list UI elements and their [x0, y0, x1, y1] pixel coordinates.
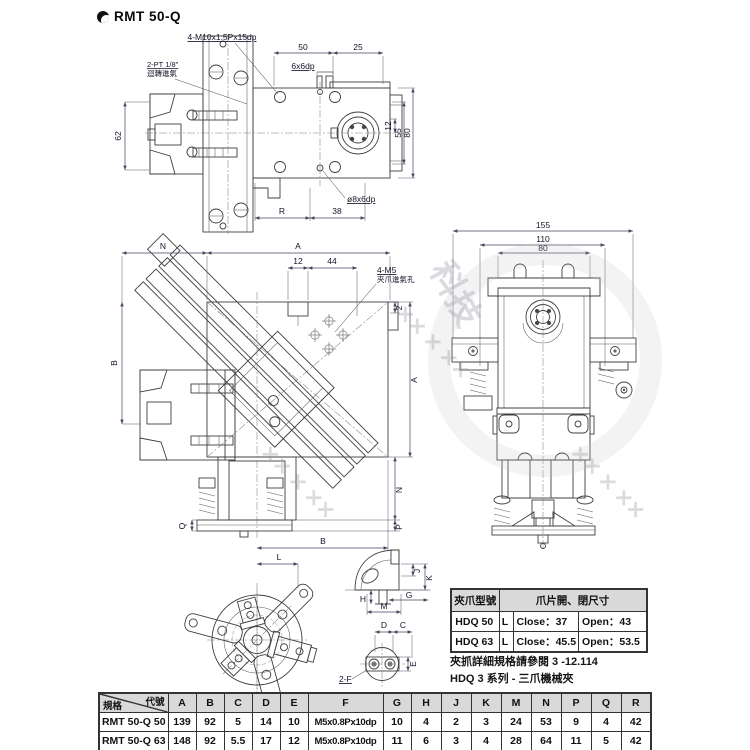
dim-label: 80	[402, 128, 412, 138]
spec-cell: 17	[252, 732, 280, 750]
dim-label: G	[406, 590, 413, 600]
jaw-col-model: 夾爪型號	[451, 589, 499, 612]
jaw-model: HDQ 63	[451, 632, 499, 653]
spec-table: 代號 規格 A B C D E F G H J K M N P Q R RMT …	[98, 692, 652, 750]
spec-cell: 24	[501, 713, 531, 732]
spec-cell: M5x0.8Px10dp	[308, 713, 383, 732]
diagonal-view-drawing: N A 12 44 4-M5 夾爪進氣孔 B Q 2	[95, 238, 445, 720]
spec-cell: 2	[441, 713, 471, 732]
spec-cell: 4	[471, 732, 501, 750]
top-view-geometry	[145, 34, 407, 234]
spec-col-header: B	[196, 693, 224, 713]
dim-label: 2-PT 1/8"	[147, 60, 179, 69]
jaw-grip: L	[499, 632, 513, 653]
dim-label: C	[400, 620, 406, 630]
jaw-model: HDQ 50	[451, 612, 499, 632]
spec-col-header: M	[501, 693, 531, 713]
dim-label: R	[279, 206, 285, 216]
spec-cell: 4	[411, 713, 441, 732]
spec-cell: 148	[168, 732, 196, 750]
spec-cell: 139	[168, 713, 196, 732]
note-reference: 夾抓詳細規格請參閱 3 -12.114	[450, 653, 598, 669]
dim-label: 4-M10x1.5Px15dp	[188, 32, 257, 42]
spec-cell: 42	[621, 732, 651, 750]
spec-cell: 3	[471, 713, 501, 732]
dim-label: 80	[538, 243, 548, 253]
top-view-dimensions: 4-M10x1.5Px15dp 2-PT 1/8" 迴轉進氣 50 25 6x6…	[113, 32, 415, 221]
dim-label: 2	[394, 305, 404, 310]
dim-label: K	[424, 575, 434, 581]
jaw-col-size: 爪片開、閉尺寸	[499, 589, 647, 612]
dim-label: A	[409, 377, 419, 383]
spec-cell: 5.5	[224, 732, 252, 750]
note-series: HDQ 3 系列 - 三爪機械夾	[450, 670, 573, 686]
dim-label: 4-M5	[377, 265, 397, 275]
spec-col-header: J	[441, 693, 471, 713]
dim-label: P	[394, 524, 404, 530]
spec-col-header: D	[252, 693, 280, 713]
jaw-open: Open：53.5	[579, 632, 647, 653]
jaw-grip: L	[499, 612, 513, 632]
spec-col-header: N	[531, 693, 561, 713]
dim-label: 155	[536, 220, 550, 230]
spec-cell: 9	[561, 713, 591, 732]
page-header: RMT 50-Q	[97, 9, 181, 24]
spec-col-header: F	[308, 693, 383, 713]
top-view-drawing: 4-M10x1.5Px15dp 2-PT 1/8" 迴轉進氣 50 25 6x6…	[95, 28, 430, 238]
spec-model: RMT 50-Q 50	[99, 713, 168, 732]
dim-label: J	[412, 569, 422, 573]
spec-cell: 11	[383, 732, 411, 750]
spec-cell: 10	[280, 713, 308, 732]
dim-label: 夾爪進氣孔	[377, 274, 415, 284]
dim-label: ø8x6dp	[347, 194, 376, 204]
spec-model: RMT 50-Q 63	[99, 732, 168, 750]
spec-cell: 11	[561, 732, 591, 750]
spec-col-header: R	[621, 693, 651, 713]
catalog-page: RMT 50-Q 科技 ✕✕ ✕ ✕✕ ✕✕ ✕ ✕✕ ✕✕ ✕ ✕✕	[0, 0, 750, 750]
table-row: HDQ 50 L Close：37 Open：43	[451, 612, 647, 632]
front-view-geometry	[452, 260, 636, 549]
page-title: RMT 50-Q	[114, 9, 181, 24]
dim-label: 25	[353, 42, 363, 52]
m5-holes	[308, 314, 350, 356]
jaw-close: Close：45.5	[513, 632, 579, 653]
diagonal-view-dimensions: N A 12 44 4-M5 夾爪進氣孔 B Q 2	[109, 241, 419, 588]
jaw-detail-face: D C E 2-F	[339, 620, 418, 687]
spec-cell: M5x0.8Px10dp	[308, 732, 383, 750]
dim-label: 12	[293, 256, 303, 266]
front-view-drawing: 155 110 80	[448, 220, 648, 550]
dim-label: N	[394, 487, 404, 493]
jaw-close: Close：37	[513, 612, 579, 632]
dim-label: 62	[113, 131, 123, 141]
dim-label: A	[295, 241, 301, 251]
spec-cell: 14	[252, 713, 280, 732]
dim-label: 50	[298, 42, 308, 52]
spec-cell: 3	[441, 732, 471, 750]
jaw-open: Open：43	[579, 612, 647, 632]
table-row: HDQ 63 L Close：45.5 Open：53.5	[451, 632, 647, 653]
jaw-table-header-row: 夾爪型號 爪片開、閉尺寸	[451, 589, 647, 612]
spec-cell: 6	[411, 732, 441, 750]
spec-col-header: K	[471, 693, 501, 713]
dim-label: B	[320, 536, 326, 546]
spec-cell: 42	[621, 713, 651, 732]
dim-label: 6x6dp	[291, 61, 314, 71]
spec-cell: 10	[383, 713, 411, 732]
table-row: RMT 50-Q 50 139 92 5 14 10 M5x0.8Px10dp …	[99, 713, 651, 732]
spec-cell: 92	[196, 713, 224, 732]
spec-corner-bottom: 規格	[103, 698, 122, 712]
dim-label: Q	[177, 522, 187, 529]
spec-cell: 28	[501, 732, 531, 750]
spec-cell: 53	[531, 713, 561, 732]
spec-cell: 92	[196, 732, 224, 750]
dim-label: 44	[327, 256, 337, 266]
spec-cell: 4	[591, 713, 621, 732]
spec-col-header: P	[561, 693, 591, 713]
spec-cell: 12	[280, 732, 308, 750]
dim-label: D	[381, 620, 387, 630]
spec-col-header: H	[411, 693, 441, 713]
dim-label: M	[380, 601, 387, 611]
table-row: RMT 50-Q 63 148 92 5.5 17 12 M5x0.8Px10d…	[99, 732, 651, 750]
spec-cell: 5	[591, 732, 621, 750]
dim-label: 38	[332, 206, 342, 216]
dim-label: 迴轉進氣	[147, 68, 177, 78]
spec-header-row: 代號 規格 A B C D E F G H J K M N P Q R	[99, 693, 651, 713]
spec-corner-cell: 代號 規格	[99, 693, 168, 713]
dim-label: N	[160, 241, 166, 251]
jaw-detail-side: J K H G M	[345, 550, 434, 615]
bullet-icon	[97, 11, 109, 23]
spec-col-header: E	[280, 693, 308, 713]
dim-label: E	[408, 661, 418, 667]
dim-label: 12	[383, 121, 393, 131]
dim-label: L	[277, 552, 282, 562]
spec-col-header: C	[224, 693, 252, 713]
spec-col-header: A	[168, 693, 196, 713]
dim-label: 2-F	[339, 674, 352, 684]
spec-cell: 64	[531, 732, 561, 750]
jaw-model-table: 夾爪型號 爪片開、閉尺寸 HDQ 50 L Close：37 Open：43 H…	[450, 588, 648, 653]
dim-label: H	[360, 594, 366, 604]
spec-col-header: Q	[591, 693, 621, 713]
spec-corner-top: 代號	[145, 694, 164, 708]
spec-col-header: G	[383, 693, 411, 713]
dim-label: B	[109, 360, 119, 366]
spec-cell: 5	[224, 713, 252, 732]
